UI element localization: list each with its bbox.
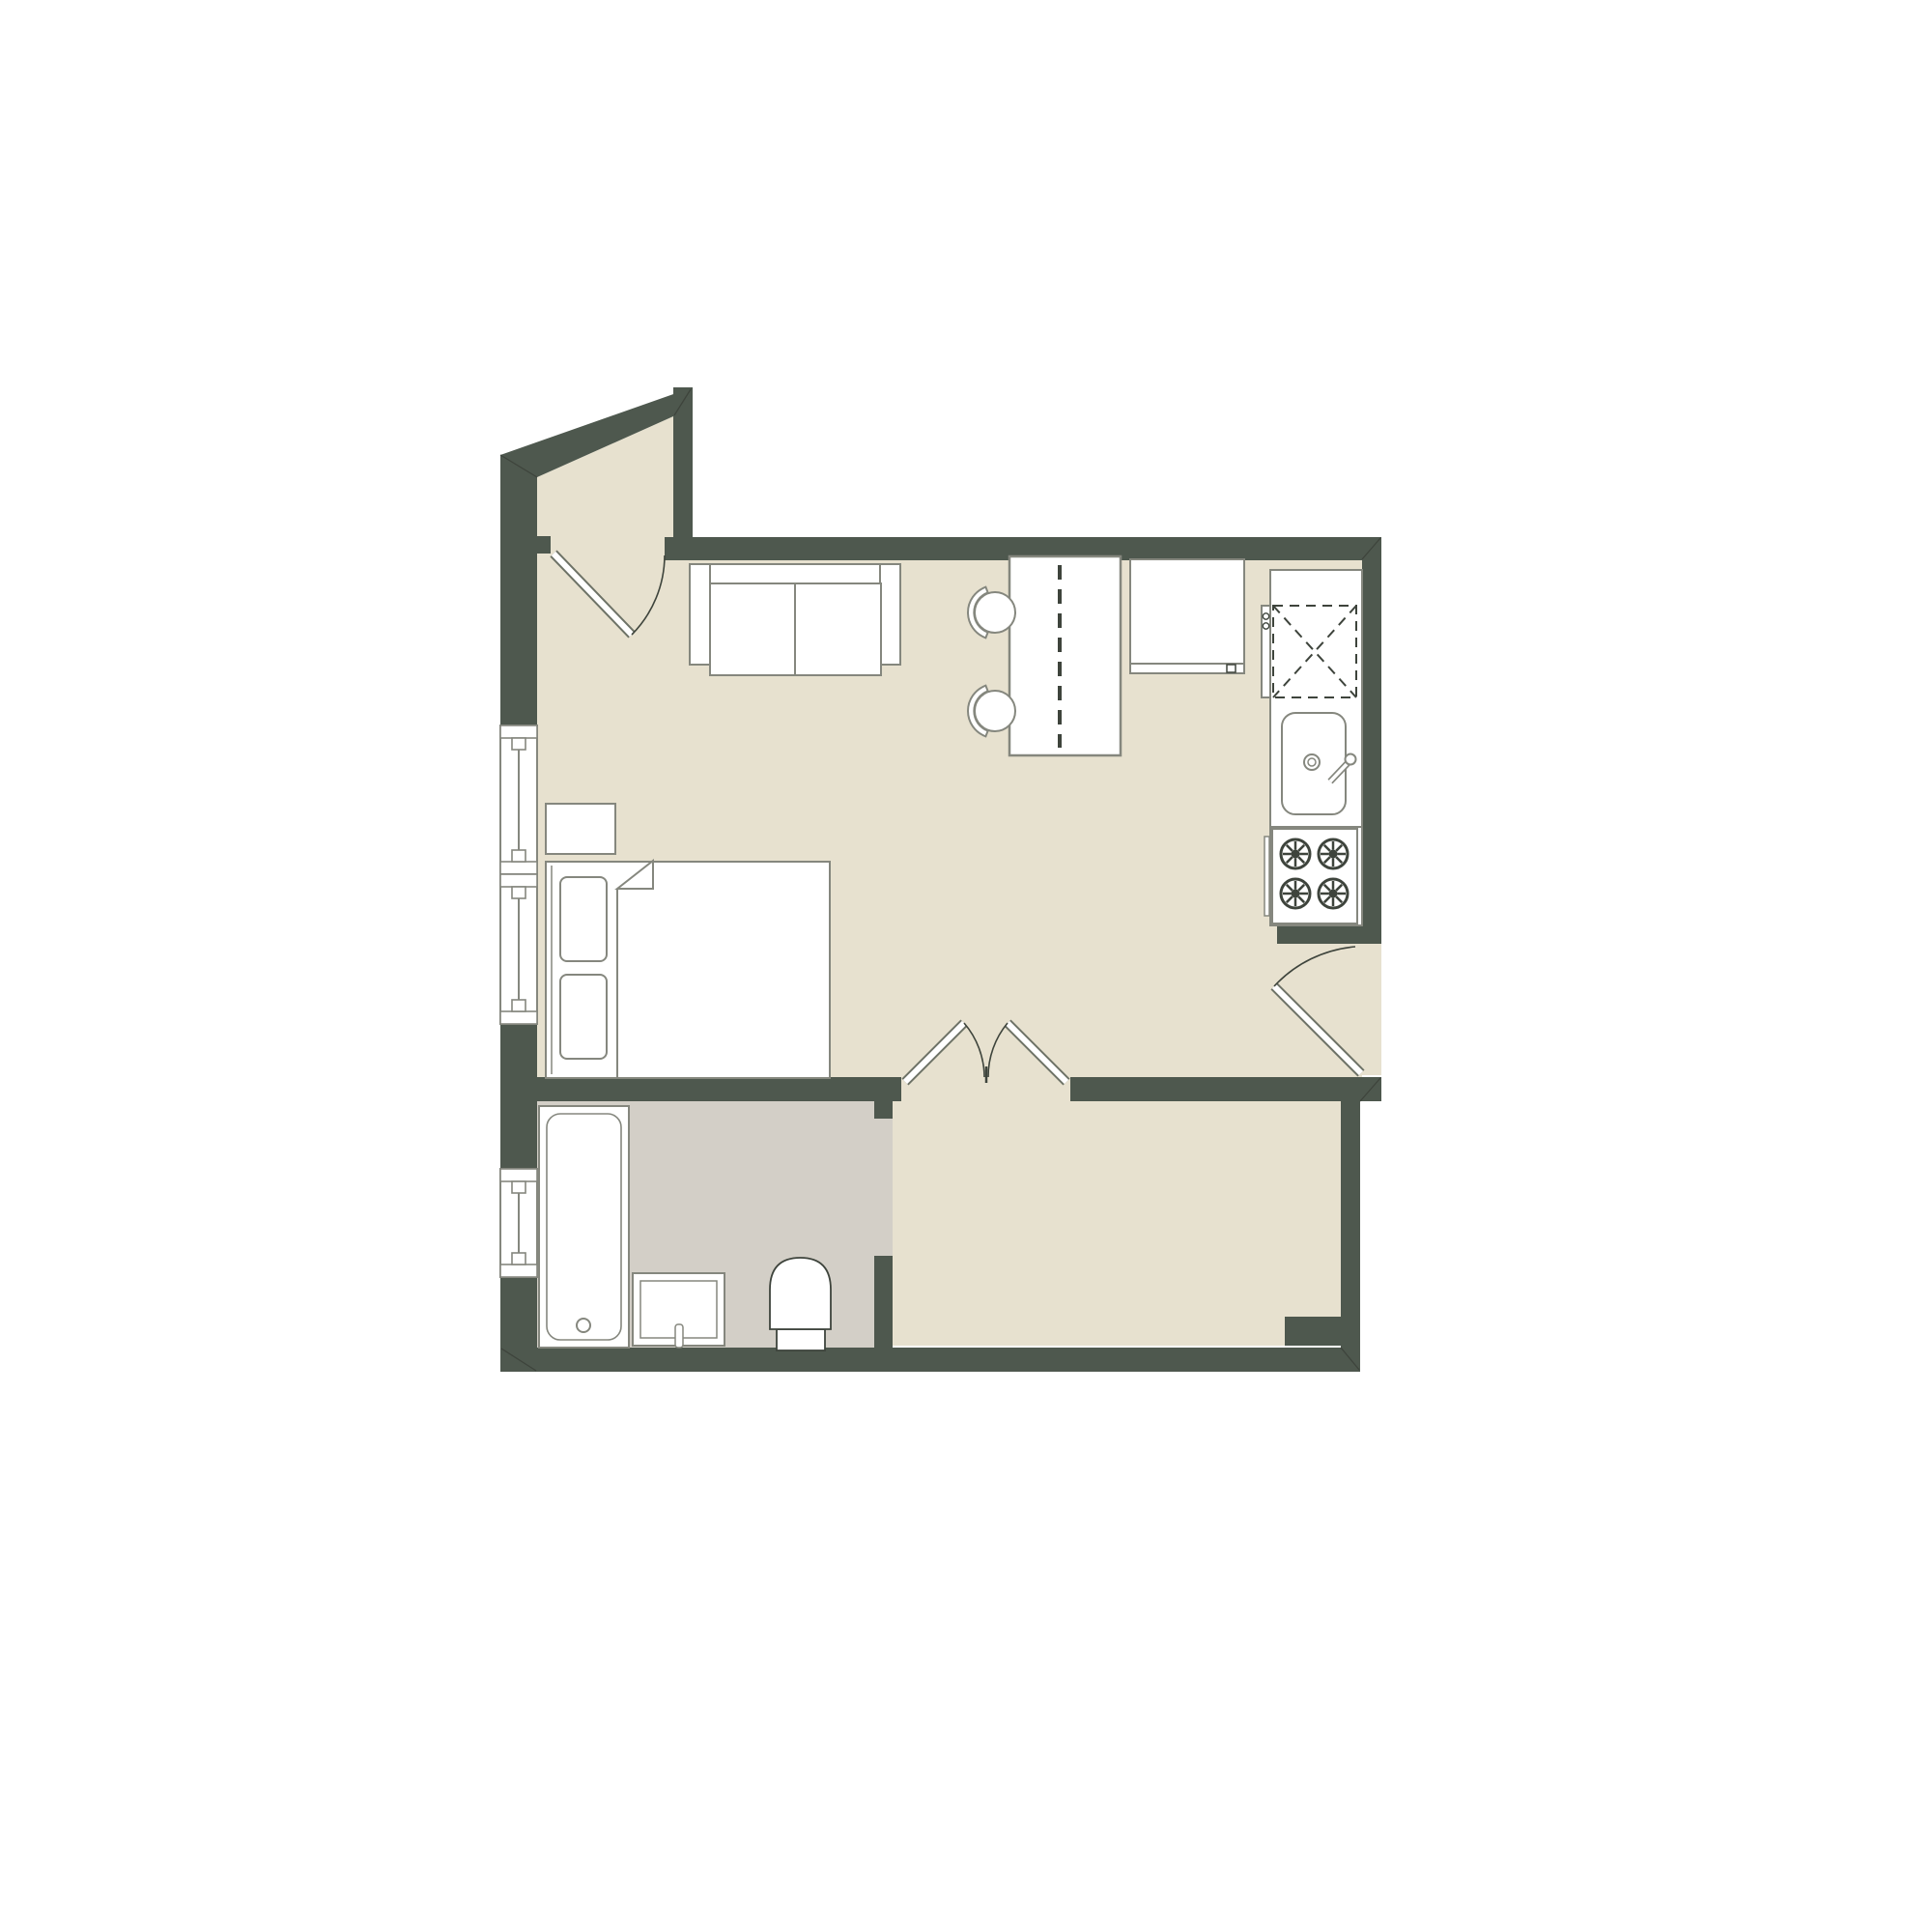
sofa — [690, 564, 900, 675]
nightstand — [546, 804, 615, 854]
kitchen-sink — [1282, 713, 1356, 814]
stove — [1264, 829, 1357, 923]
floor-plan-svg — [0, 0, 1932, 1932]
wardrobe — [1130, 559, 1244, 673]
dining-table — [1009, 556, 1121, 755]
window-living-lower — [500, 874, 537, 1024]
page-background — [0, 0, 1932, 1932]
bathtub — [539, 1106, 629, 1348]
toilet — [770, 1258, 831, 1350]
bed — [546, 861, 830, 1078]
window-living-upper — [500, 725, 537, 874]
window-bathroom — [500, 1169, 537, 1277]
floor-entry-doorway-right — [1362, 944, 1381, 1075]
wash-basin — [633, 1273, 724, 1348]
floor-bedroom — [893, 1077, 1341, 1346]
